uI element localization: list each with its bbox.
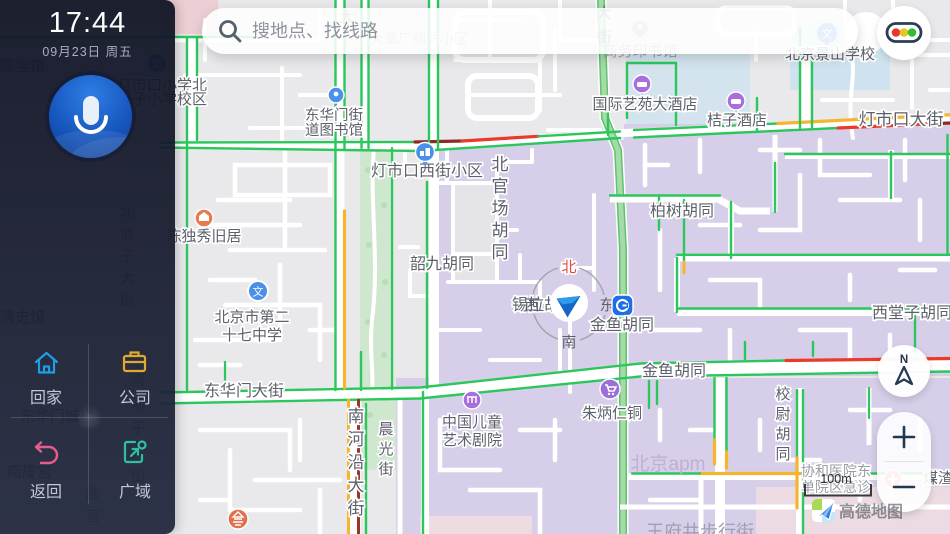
svg-text:柏树胡同: 柏树胡同 [650,202,714,220]
svg-text:同: 同 [492,243,509,262]
svg-text:同: 同 [775,446,790,463]
svg-text:王府井步行街: 王府井步行街 [646,522,754,534]
svg-text:韶九胡同: 韶九胡同 [410,255,474,273]
svg-text:胡: 胡 [492,221,509,240]
svg-text:街: 街 [378,461,393,478]
svg-text:北: 北 [492,155,509,174]
svg-text:沿: 沿 [348,453,365,472]
svg-text:大: 大 [348,476,365,495]
svg-text:道图书馆: 道图书馆 [305,122,363,139]
svg-text:高德地图: 高德地图 [839,502,903,521]
svg-text:东华门街: 东华门街 [305,107,363,124]
svg-text:街: 街 [348,499,365,518]
svg-text:N: N [900,354,908,366]
svg-text:胡: 胡 [775,426,790,443]
svg-text:朱炳仁铜: 朱炳仁铜 [582,405,642,422]
svg-text:校: 校 [775,386,790,403]
svg-text:北京apm: 北京apm [631,453,706,475]
svg-text:北京市第二: 北京市第二 [214,308,289,326]
svg-text:光: 光 [378,441,393,458]
svg-text:晨: 晨 [378,421,393,438]
svg-text:国际艺苑大酒店: 国际艺苑大酒店 [592,96,697,113]
svg-text:金鱼胡同: 金鱼胡同 [642,362,706,380]
svg-text:南: 南 [561,334,576,351]
svg-text:官: 官 [492,177,509,196]
svg-text:尉: 尉 [775,406,790,423]
svg-text:河: 河 [348,430,365,449]
svg-text:场: 场 [492,199,509,218]
svg-text:中国儿童: 中国儿童 [442,413,502,431]
svg-text:陈独秀旧居: 陈独秀旧居 [166,227,241,245]
svg-text:灯市口西街小区: 灯市口西街小区 [371,162,483,180]
svg-text:灯市口大街: 灯市口大街 [859,110,944,129]
svg-text:东华门大街: 东华门大街 [204,382,284,400]
svg-text:西堂子胡同: 西堂子胡同 [872,304,950,322]
svg-text:南: 南 [348,407,365,426]
svg-text:桔子酒店: 桔子酒店 [707,112,767,129]
svg-text:北: 北 [561,259,576,276]
svg-text:十七中学: 十七中学 [222,327,282,344]
svg-text:艺术剧院: 艺术剧院 [442,431,502,449]
svg-text:西: 西 [524,297,539,314]
svg-text:文: 文 [253,285,264,299]
svg-text:金鱼胡同: 金鱼胡同 [590,316,654,334]
